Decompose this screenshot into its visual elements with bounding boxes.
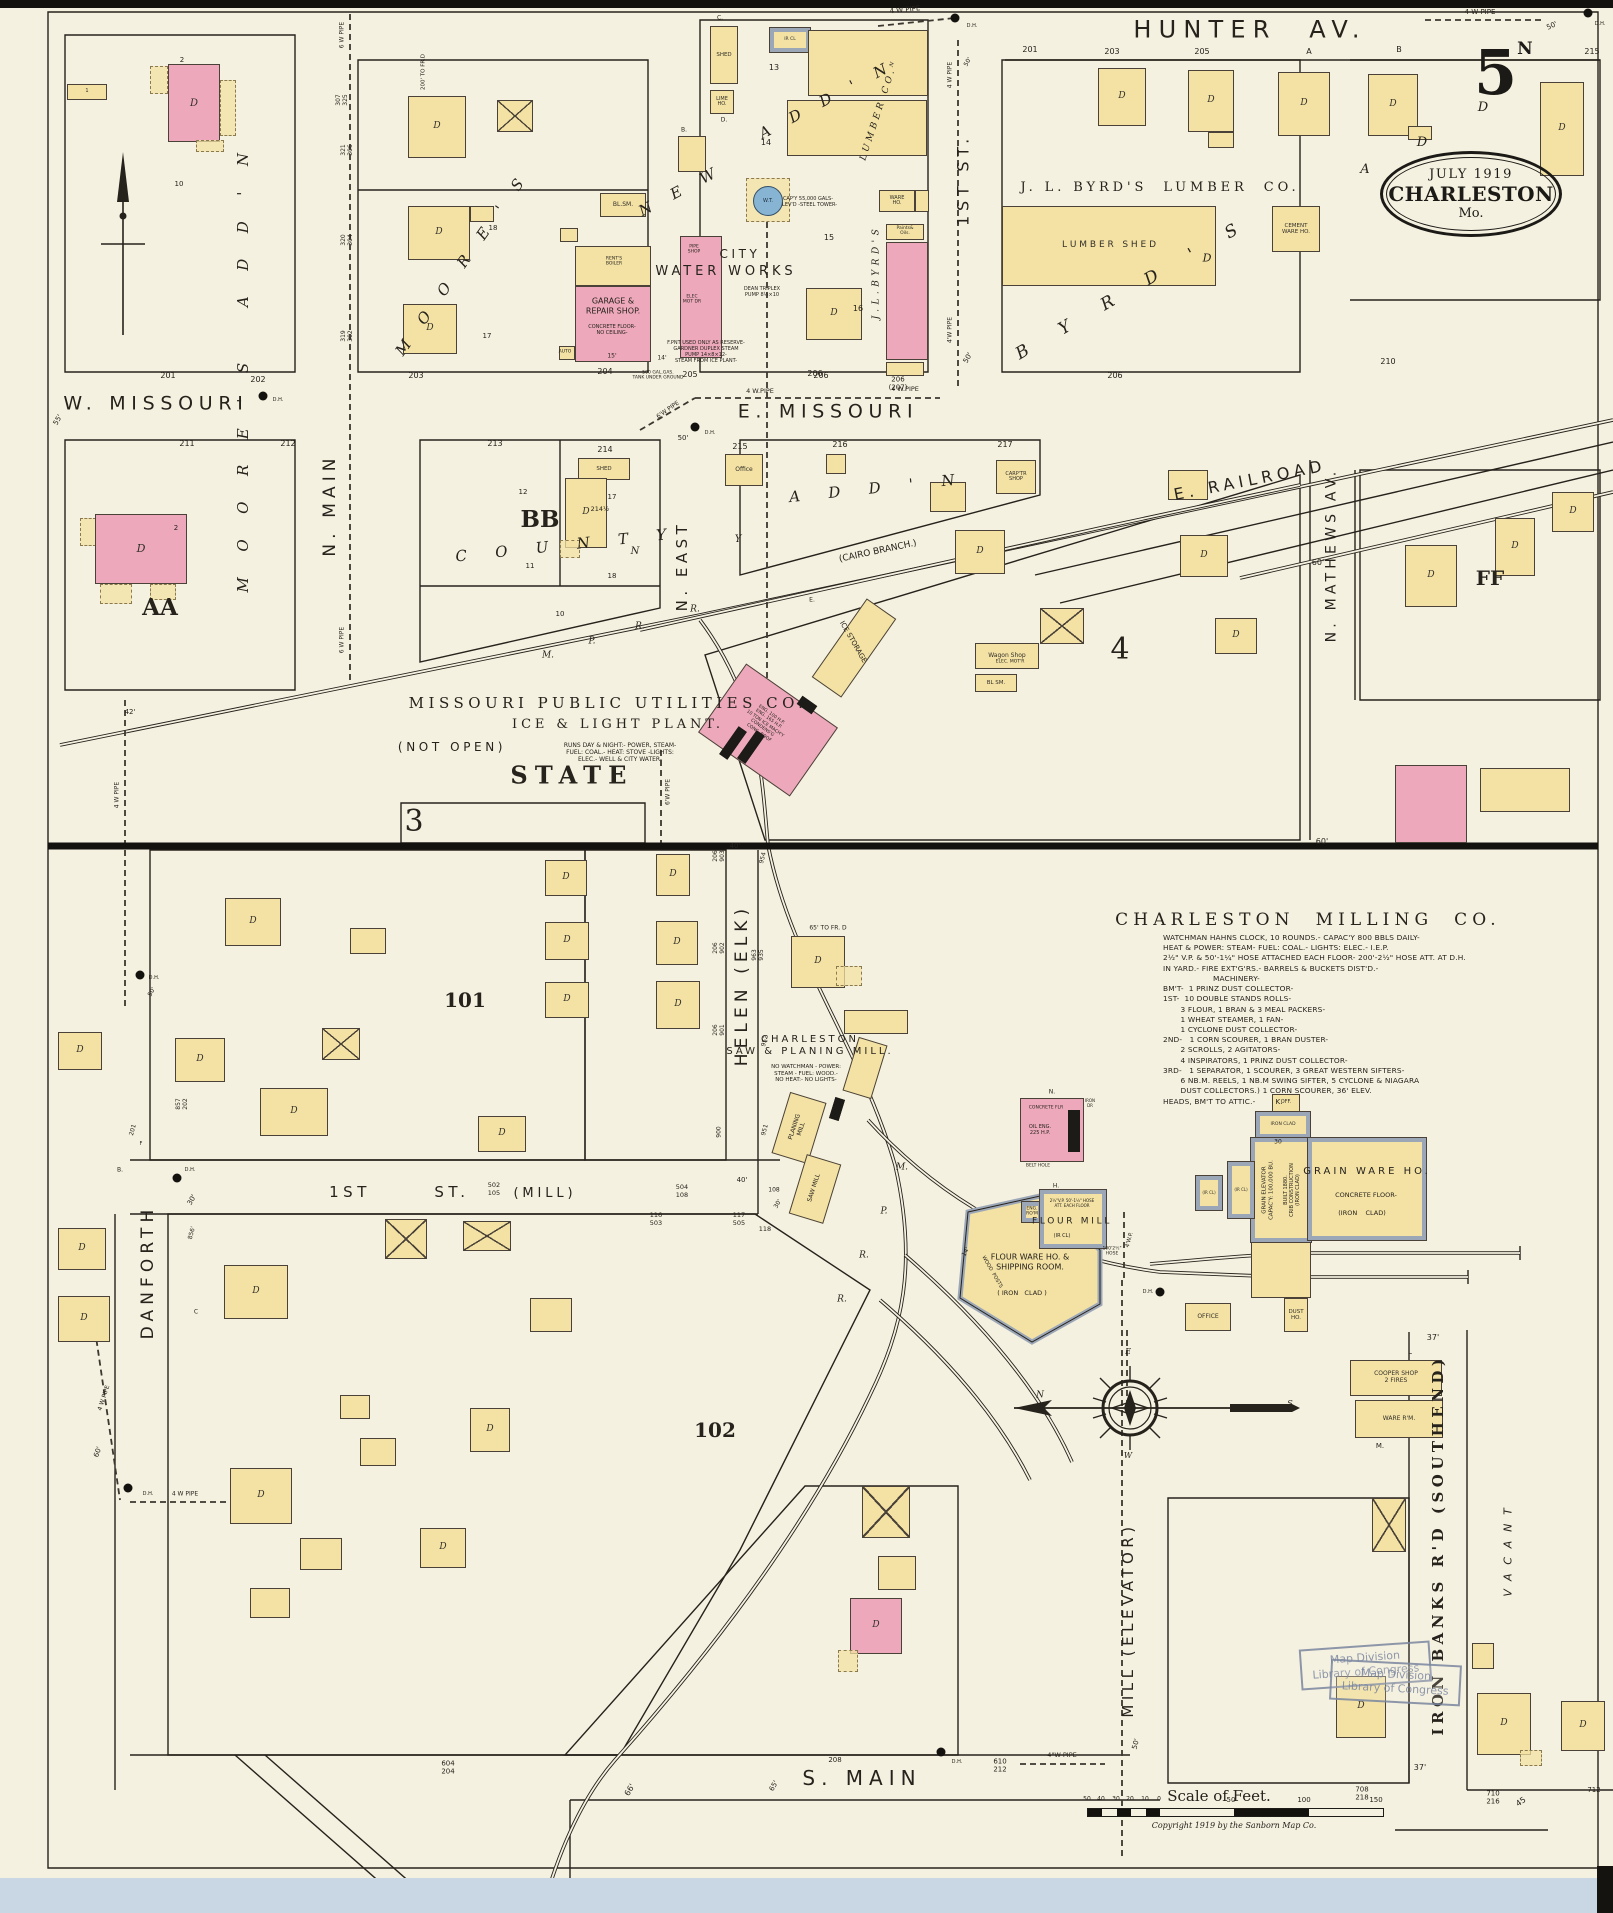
scale-bar-cell (1234, 1809, 1308, 1816)
map-line (95, 1330, 120, 1500)
map-label: 708 218 (1355, 1786, 1368, 1803)
map-label: 712 (1587, 1786, 1600, 1794)
water-tank-icon: W.T. (753, 186, 783, 216)
map-label: 4 W PIPE (113, 782, 120, 808)
map-label: E. MISSOURI (738, 401, 919, 424)
map-label: 37' (1427, 1333, 1439, 1343)
map-label: DANFORTH (138, 1205, 158, 1340)
building: D (545, 922, 589, 960)
building (826, 454, 846, 474)
map-label: CHARLESTON MILLING CO. (1115, 910, 1501, 930)
hydrant-dot-icon (136, 971, 145, 980)
building: D (478, 1116, 526, 1152)
library-stamp-2: Map Division Library of Congress (1329, 1659, 1462, 1706)
building: D (225, 898, 281, 946)
map-label: 14 (761, 138, 771, 148)
sanborn-map-sheet: 1DDDDDBL.SM.SHEDLIME HO.IR CLWARE HO.Pai… (0, 0, 1613, 1913)
map-label: 12 (519, 488, 528, 496)
map-label: D.H. (952, 1759, 963, 1765)
map-label: R. (837, 1295, 847, 1306)
building: D (1215, 618, 1257, 654)
building: CARP'TR SHOP (996, 460, 1036, 494)
building: Paints& Oils. (886, 224, 924, 240)
building: D (168, 64, 220, 142)
map-label: R. (690, 605, 700, 616)
map-label: (IR CL) (1054, 1233, 1071, 1239)
hydrant-dot-icon (951, 14, 960, 23)
building (836, 966, 862, 986)
map-label: HUNTER (1133, 16, 1276, 45)
map-label: P. (880, 1207, 887, 1218)
map-label: STATE (510, 762, 633, 791)
map-label: FF (1476, 566, 1504, 590)
building (100, 584, 132, 604)
building (838, 1650, 858, 1672)
map-label: 210 (1380, 357, 1395, 367)
scale-bar-cell (1131, 1809, 1145, 1816)
map-label: 504 108 (676, 1184, 688, 1200)
scale-bar-cell (1309, 1809, 1383, 1816)
building: D (545, 860, 587, 896)
map-label: ST. (434, 1183, 469, 1201)
building (1251, 1242, 1311, 1298)
scale-bar-cell (1160, 1809, 1234, 1816)
building: CEMENT WARE HO. (1272, 206, 1320, 252)
map-label: 30 (1274, 1138, 1282, 1145)
building: IRON CLAD (1256, 1112, 1310, 1138)
map-label: 205 (1194, 47, 1209, 57)
map-label: RENT'S BOILER (606, 257, 622, 268)
map-label: WATER WORKS (655, 264, 796, 280)
map-label: 2 (174, 524, 178, 532)
map-label: D.H. (1143, 1289, 1154, 1295)
building: D (420, 1528, 466, 1568)
building: Office (725, 454, 763, 486)
building: D (1540, 82, 1584, 176)
map-label: 4 (1110, 632, 1129, 668)
building (878, 1556, 916, 1590)
map-label: 14' (657, 354, 666, 361)
map-label: 102 (694, 1418, 736, 1442)
map-label: DEAN TRIPLEX PUMP 8½×10 (744, 286, 780, 298)
map-line (401, 803, 645, 843)
map-label: MISSOURI PUBLIC UTILITIES CO. (409, 694, 808, 712)
building: BL SM. (975, 674, 1017, 692)
map-label: GARAGE & REPAIR SHOP. (586, 296, 640, 315)
map-label: D.H. (185, 1167, 196, 1173)
building (300, 1538, 342, 1570)
building: D (850, 1598, 902, 1654)
map-label: 10 (556, 610, 565, 618)
stamp-line2: Library of Congress (1341, 1679, 1448, 1698)
milling-co-notes: WATCHMAN HAHNS CLOCK, 10 ROUNDS.- CAPAC'… (1163, 933, 1466, 1107)
map-label: 604 204 (441, 1760, 454, 1777)
map-label: N. MATHEWS AV. (1324, 468, 1341, 643)
map-label: 37' (1414, 1763, 1426, 1773)
map-label: ICE & LIGHT PLANT. (512, 717, 724, 733)
map-line (150, 850, 585, 1160)
building (350, 928, 386, 954)
map-line (878, 18, 955, 26)
map-label: 116 503 (650, 1212, 662, 1228)
map-label: 150 (1369, 1796, 1382, 1804)
building: D (1477, 1693, 1531, 1755)
building (1520, 1750, 1542, 1766)
map-label: IRON DR (1085, 1099, 1095, 1109)
building: 1 (67, 84, 107, 100)
map-label: F (140, 1141, 143, 1147)
map-label: 10 (1141, 1795, 1149, 1802)
map-label: N. MAIN (320, 453, 340, 556)
map-label: PIPE SHOP (688, 245, 701, 256)
map-label: H. (1053, 1182, 1059, 1189)
map-label: 502 105 (488, 1182, 500, 1198)
map-label: 1ST ST. (953, 134, 972, 226)
map-label: CAP'Y 55,000 GALS- ELEV'D -STEEL TOWER- (779, 196, 837, 208)
map-label: 1ST (329, 1183, 371, 1201)
compass-rose-icon (1000, 1346, 1310, 1470)
map-label: 211 (179, 439, 194, 449)
map-label: 4 W PIPE (1465, 8, 1496, 16)
map-label: 214 (597, 445, 612, 455)
title-oval-ring (1386, 157, 1556, 231)
map-label: BELT HOLE (1026, 1163, 1050, 1168)
map-label: 50 (1083, 1795, 1091, 1802)
map-label: 204 (597, 367, 612, 377)
map-label: D.H. (967, 23, 978, 29)
map-label: 117 505 (733, 1212, 745, 1228)
building: D (230, 1468, 292, 1524)
map-label: B. (117, 1166, 123, 1173)
hydrant-dot-icon (1156, 1288, 1165, 1297)
building (340, 1395, 370, 1419)
hydrant-dot-icon (1584, 9, 1593, 18)
building: WARE HO. (879, 190, 915, 212)
map-label: 118 (759, 1226, 771, 1234)
building: D (545, 982, 589, 1018)
hydrant-dot-icon (124, 1484, 133, 1493)
building: SHED (710, 26, 738, 84)
scale-bar-cell (1088, 1809, 1102, 1816)
map-label: C. (717, 14, 723, 21)
map-label: A (1306, 47, 1311, 57)
building (1251, 1138, 1311, 1242)
map-label: FLOUR WARE HO. & SHIPPING ROOM. (991, 1252, 1069, 1271)
building: D (1552, 492, 1594, 532)
map-label: FLOUR MILL (1032, 1217, 1112, 1228)
map-label: D.H. (705, 430, 716, 436)
map-label: CHARLESTON SAW & PLANING MILL. (726, 1034, 893, 1058)
map-label: 6 W PIPE (338, 627, 345, 653)
map-label: CONCRETE FLOOR- (1335, 1192, 1397, 1200)
scale-bar-cell (1102, 1809, 1116, 1816)
building: D (58, 1228, 106, 1270)
scale-bar-cell (1117, 1809, 1131, 1816)
building (1395, 765, 1467, 843)
map-label: 65' TO FR. D (809, 924, 846, 931)
building: LIME HO. (710, 90, 734, 114)
map-label: N. (1049, 1088, 1055, 1095)
map-label: 206 (807, 369, 822, 379)
building (1480, 768, 1570, 812)
map-label: BUILT 1880. CRIB CONSTRUCTION (IRON CLAD… (1283, 1163, 1301, 1217)
building: L U M B E R S H E D (1002, 206, 1216, 286)
map-label: 203 (1104, 47, 1119, 57)
building (385, 1219, 427, 1259)
map-label: CONCRETE FLOOR- NO CEILING- (588, 324, 636, 336)
map-label: W. MISSOURI (63, 393, 248, 416)
map-label: E. (809, 596, 815, 603)
map-label: M. (542, 651, 554, 662)
map-label: ELEC. MOT'R (996, 659, 1025, 664)
map-label: BB (521, 506, 560, 534)
map-label: N (631, 546, 640, 558)
building: (IR CL) (1228, 1162, 1254, 1218)
building: D (1188, 70, 1234, 132)
map-label: R. (859, 1251, 869, 1262)
building (80, 518, 96, 546)
building: D (58, 1032, 102, 1070)
map-label: 320 304 (340, 234, 354, 245)
building: D (656, 854, 690, 896)
building (678, 136, 706, 172)
map-label: 16 (853, 304, 863, 314)
map-label: 212 (280, 439, 295, 449)
map-label: 4'W PIPE (946, 317, 953, 343)
map-label: 201 (1022, 45, 1037, 55)
map-label: 321 306 (340, 144, 354, 155)
map-label: S. MAIN (802, 1766, 921, 1790)
map-label: 100 (1297, 1796, 1310, 1804)
map-label: 30 (1112, 1795, 1120, 1802)
building: SHED (578, 458, 630, 480)
building (862, 1486, 910, 1538)
map-label: 10 (175, 180, 184, 188)
map-label: 217 (997, 440, 1012, 450)
map-label: 200' TO FR.D (421, 54, 428, 90)
hydrant-dot-icon (259, 392, 268, 401)
map-label: 4 W PIPE (946, 62, 953, 88)
building: D (955, 530, 1005, 574)
building: Wagon Shop (975, 643, 1039, 669)
building (196, 140, 224, 152)
map-label: 18 (489, 224, 498, 232)
map-label: 15 (824, 233, 834, 243)
building: D (1180, 535, 1228, 577)
map-label: 216 (832, 440, 847, 450)
building: D (260, 1088, 328, 1136)
map-label: 17 (608, 493, 617, 501)
map-label: M. (896, 1163, 908, 1174)
map-label: ELEC MOT DR (683, 295, 701, 306)
map-label: 0 (1157, 1795, 1161, 1802)
building (886, 362, 924, 376)
map-label: 3 (404, 804, 423, 840)
map-label: 208 (828, 1756, 841, 1764)
map-label: RUNS DAY & NIGHT:- POWER, STEAM- FUEL: C… (564, 742, 676, 764)
building: (IR CL) (1196, 1176, 1222, 1210)
building (322, 1028, 360, 1060)
map-label: P. (588, 637, 595, 648)
building (360, 1438, 396, 1466)
map-label: 50' (678, 434, 689, 442)
sheet-number-suffix: N (1517, 39, 1533, 59)
map-label: 13 (769, 63, 779, 73)
water-tank-label: W.T. (763, 198, 773, 204)
building (915, 190, 929, 212)
map-label: MOORE'S ADD'N (234, 128, 252, 593)
building: D (656, 921, 698, 965)
building: IR CL (770, 28, 810, 52)
map-label: 2½"V.P. 50'-1¼" HOSE ATT. EACH FLOOR (1050, 1199, 1094, 1209)
map-label: 60' (1312, 558, 1324, 568)
map-label: 108 (768, 1186, 779, 1193)
map-label: 214½ (591, 506, 610, 514)
map-label: 42' (125, 708, 136, 716)
map-label: 206 901 (712, 1024, 726, 1035)
map-label: B (1396, 45, 1402, 55)
map-label: CITY (720, 247, 761, 261)
map-label: AA (142, 594, 178, 622)
map-label: (NOT OPEN) (398, 740, 506, 754)
building (1040, 608, 1084, 644)
map-label: AV. (1309, 16, 1366, 45)
map-label: 857 202 (175, 1098, 189, 1109)
map-label: D (1203, 251, 1212, 264)
map-label: MILL (ELEVATOR) (1119, 1522, 1137, 1717)
map-label: 4 W PIPE (172, 1490, 198, 1497)
map-label: ENG. RO'M (1026, 1207, 1038, 1218)
building: D (1098, 68, 1146, 126)
map-label: 215 (1584, 47, 1599, 57)
map-label: 900 (715, 1126, 722, 1137)
map-label: VACANT (1501, 1499, 1514, 1596)
hydrant-dot-icon (691, 423, 700, 432)
map-label: D. (721, 116, 728, 123)
map-label: 40' (730, 842, 741, 850)
map-label: 40' (737, 1176, 748, 1184)
building (1372, 1498, 1406, 1552)
map-label: 4 W.PIPE (891, 386, 919, 394)
map-label: 213 (487, 439, 502, 449)
map-label: 18 (608, 572, 617, 580)
building: D (1561, 1701, 1605, 1751)
map-label: 500 GAL.GAS. TANK UNDER GROUND (632, 371, 683, 382)
map-label: M. (1376, 1442, 1384, 1450)
map-label: F.PNT USED ONLY AS RESERVE- GARDNER DUPL… (667, 340, 745, 364)
scale-bar (1087, 1808, 1384, 1817)
map-label: 710 216 (1486, 1790, 1499, 1807)
map-label: 963 935 (751, 949, 765, 960)
map-label: B. (681, 126, 687, 133)
title-oval: JULY 1919 CHARLESTON Mo. (1380, 151, 1562, 237)
map-label: 205 (682, 370, 697, 380)
map-label: D.H. (143, 1491, 154, 1497)
sheet-number-value: 5 (1474, 36, 1517, 109)
map-label: ( IRON CLAD ) (997, 1290, 1047, 1298)
map-label: 101 (444, 988, 486, 1012)
map-label: J. L. BYRD'S LUMBER CO. (1021, 180, 1300, 196)
scan-edge-bottom (0, 1878, 1613, 1913)
map-label: R. (635, 622, 645, 633)
map-label: 17 (483, 332, 492, 340)
building (1208, 132, 1234, 148)
building: D (1405, 545, 1457, 607)
building (497, 100, 533, 132)
map-label: GRAIN ELEVATOR CAPAC'Y: 100,000 BU. (1261, 1160, 1274, 1220)
map-label: CONCRETE FLR (1029, 1105, 1063, 1110)
map-label: 4"W PIPE (1047, 1752, 1076, 1760)
building: DUST HO. (1284, 1298, 1308, 1332)
map-label: 2 (180, 56, 184, 64)
building (150, 66, 168, 94)
map-label: 6 W PIPE (338, 22, 345, 48)
map-label: Scale of Feet. (1167, 1787, 1271, 1805)
map-label: 206 902 (712, 942, 726, 953)
building (886, 242, 928, 360)
map-label: 6'W PIPE (664, 779, 671, 805)
building (1308, 1138, 1426, 1240)
building (560, 228, 578, 242)
map-label: 203 (408, 371, 423, 381)
building: D (224, 1265, 288, 1319)
map-label: J.L.BYRD'S (872, 225, 883, 320)
map-label: 40 (1097, 1795, 1105, 1802)
map-label: 4 W.PIPE (746, 388, 774, 396)
map-label: Y (735, 534, 742, 546)
sheet-number: 5N (1474, 36, 1533, 109)
map-label: 50 (1227, 1796, 1236, 1804)
map-label: L (1408, 1348, 1412, 1356)
map-label: 206 903 (712, 850, 726, 861)
building: D (656, 981, 700, 1029)
building (530, 1298, 572, 1332)
map-label: 307 325 (335, 94, 349, 105)
map-label: GRAIN WARE HO. (1303, 1166, 1431, 1178)
map-label: D.H. (1595, 21, 1606, 27)
map-label: (MILL) (513, 1186, 576, 1202)
map-label: 319 302 (340, 330, 354, 341)
building: OFFICE (1185, 1303, 1231, 1331)
map-label: 60' (1316, 837, 1328, 847)
map-label: 215 (732, 442, 747, 452)
map-label: D (1417, 135, 1427, 151)
building: D (470, 1408, 510, 1452)
building: D (58, 1296, 110, 1342)
building: D (408, 96, 466, 158)
map-label: 206 (1107, 371, 1122, 381)
map-label: (IRON CLAD) (1338, 1210, 1386, 1218)
map-label: 15' (607, 352, 616, 359)
building: D (806, 288, 862, 340)
building (1472, 1643, 1494, 1669)
map-label: 202 (250, 375, 265, 385)
building (250, 1588, 290, 1618)
building (463, 1221, 511, 1251)
building (844, 1010, 908, 1034)
map-label: Copyright 1919 by the Sanborn Map Co. (1152, 1821, 1317, 1831)
hydrant-dot-icon (173, 1174, 182, 1183)
map-label: NO WATCHMAN - POWER: STEAM - FUEL: WOOD.… (771, 1064, 841, 1084)
hydrant-dot-icon (937, 1748, 946, 1757)
north-arrow-icon (95, 140, 155, 350)
map-label: A (1360, 162, 1369, 178)
map-label: 610 212 (993, 1758, 1006, 1775)
building: D (175, 1038, 225, 1082)
map-label: 11 (526, 562, 535, 570)
map-label: 100'2½" HOSE (1102, 1247, 1121, 1258)
map-label: C (194, 1308, 198, 1315)
